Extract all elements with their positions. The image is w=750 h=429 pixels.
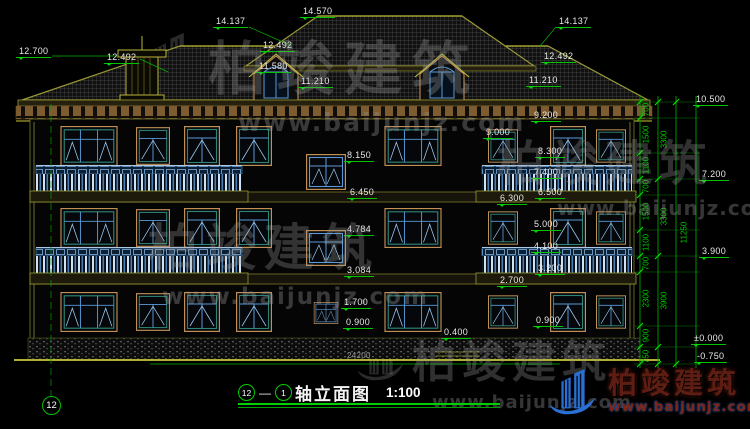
axis-dash: — — [259, 386, 271, 400]
elevation-label: 3.900 — [699, 246, 729, 258]
elevation-label: 11.210 — [298, 76, 333, 88]
plinth-ground — [14, 338, 660, 364]
chain-dimension: 700 — [642, 246, 651, 282]
elevation-label: 2.700 — [497, 275, 527, 287]
elevation-label: 1.700 — [341, 297, 371, 309]
title-scale: 1:100 — [386, 385, 421, 400]
elevation-label: 7.200 — [699, 169, 729, 181]
axis-bubble-12: 12 — [42, 396, 61, 415]
chain-dimension: 11250 — [680, 215, 689, 251]
chain-dimension: 3900 — [660, 283, 669, 319]
elevation-label: 11.210 — [526, 75, 561, 87]
elevation-label: 3.084 — [344, 265, 374, 277]
elevation-label: ±0.000 — [691, 333, 726, 345]
elevation-label: 14.570 — [300, 6, 335, 18]
elevation-label: 8.150 — [344, 150, 374, 162]
brand-url: www.baijunjz.com — [608, 399, 750, 415]
elevation-label: 5.000 — [531, 219, 561, 231]
brand-name: 柏竣建筑 — [608, 368, 750, 398]
elevation-label: 14.137 — [556, 16, 591, 28]
elevation-label: 3.200 — [535, 263, 565, 275]
elevation-label: 11.580 — [256, 61, 291, 73]
elevation-label: 0.900 — [533, 315, 563, 327]
elevation-label: 6.500 — [535, 187, 565, 199]
axis-bubble-left: 12 — [238, 384, 255, 401]
brand-logo: 柏竣建筑 www.baijunjz.com — [544, 362, 750, 420]
title-underline-2 — [238, 407, 500, 408]
elevation-label: 12.492 — [260, 40, 295, 52]
elevation-label: 0.400 — [441, 327, 471, 339]
elevation-label: 9.000 — [483, 127, 513, 139]
elevation-label: 12.492 — [541, 51, 576, 63]
elevation-label: 12.492 — [104, 52, 139, 64]
title-underline — [238, 403, 500, 405]
elevation-label: 8.300 — [535, 146, 565, 158]
elevation-label: 10.500 — [693, 94, 728, 106]
elevation-label: 6.300 — [497, 193, 527, 205]
elevation-label: 14.137 — [213, 16, 248, 28]
drawing-title: 12 — 1 轴立面图 1:100 — [238, 380, 421, 405]
elevation-label: 24200 — [344, 351, 374, 362]
axis-bubble-right: 1 — [275, 384, 292, 401]
chain-dimension: 3300 — [660, 199, 669, 235]
elevation-label: 0.900 — [343, 317, 373, 329]
brand-logo-icon — [544, 362, 602, 420]
elevation-label: 9.200 — [531, 110, 561, 122]
title-text: 轴立面图 — [295, 380, 371, 405]
chain-dimension: 2300 — [642, 281, 651, 317]
elevation-label: 7.400 — [531, 167, 561, 179]
cad-canvas: 14.13714.57014.13712.70012.49212.49211.5… — [0, 0, 750, 429]
elevation-label: 6.450 — [347, 187, 377, 199]
elevation-label: 12.700 — [16, 46, 51, 58]
chain-dimension: 3300 — [660, 122, 669, 158]
elevation-label: 4.100 — [531, 241, 561, 253]
elevation-label: 4.784 — [344, 224, 374, 236]
